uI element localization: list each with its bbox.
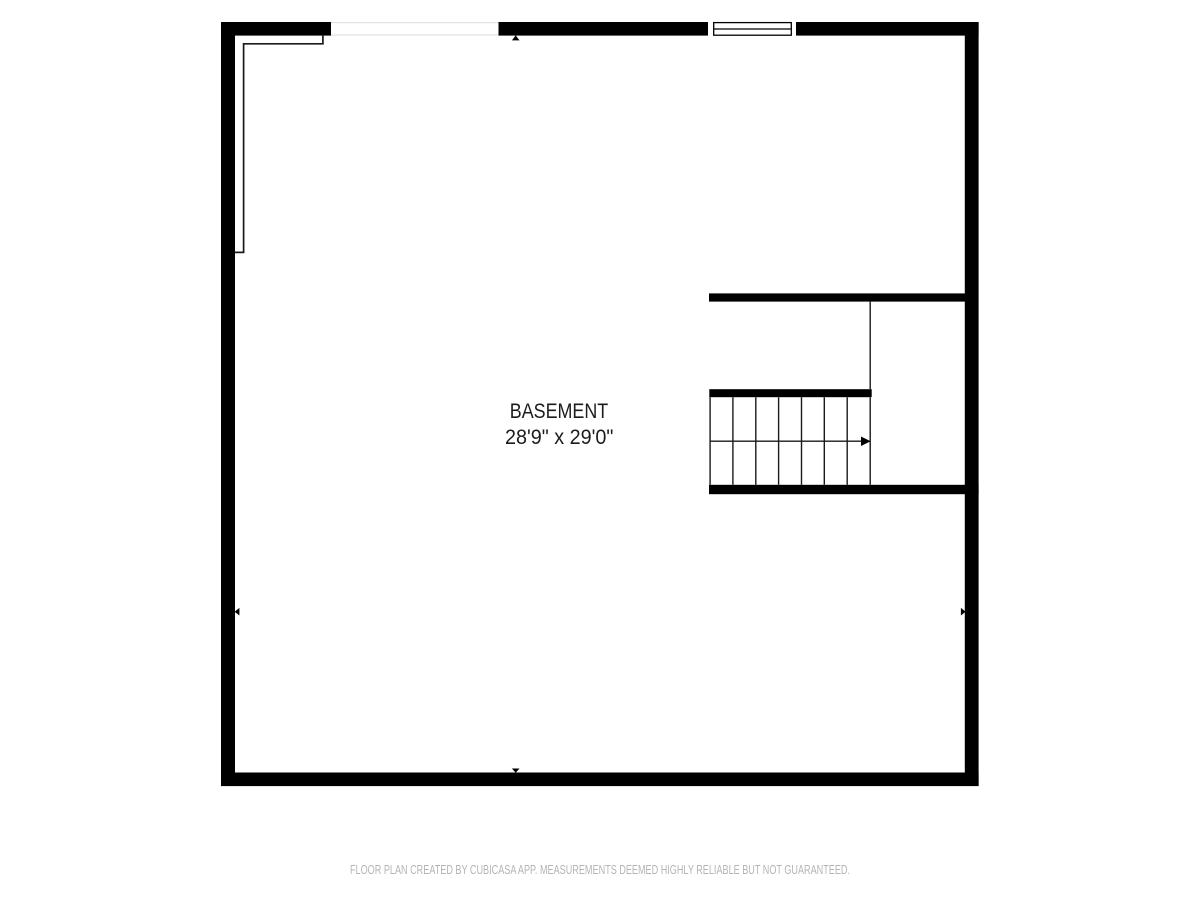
svg-text:28'9" x 29'0": 28'9" x 29'0" [505, 426, 614, 449]
svg-text:FLOOR PLAN CREATED BY CUBICASA: FLOOR PLAN CREATED BY CUBICASA APP. MEAS… [350, 862, 850, 877]
svg-text:BASEMENT: BASEMENT [510, 399, 609, 423]
